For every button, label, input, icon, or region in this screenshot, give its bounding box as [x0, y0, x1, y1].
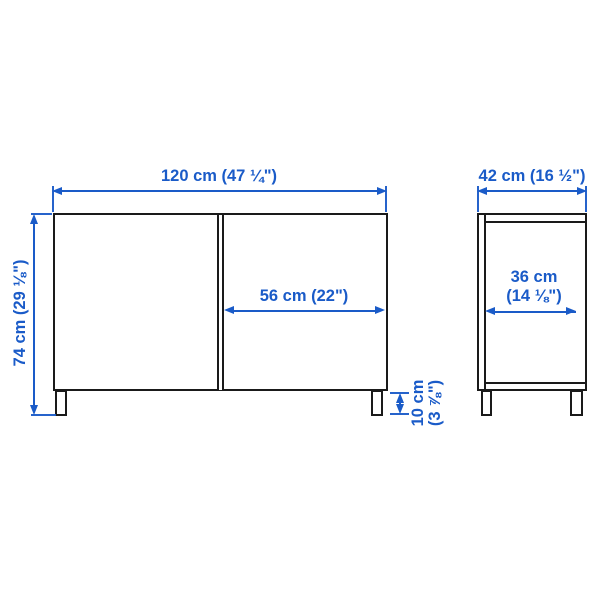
depth-dimension-line	[485, 190, 579, 192]
depth-dimension-label: 42 cm (16 ½")	[479, 167, 586, 185]
inner-depth-dimension-label-line2: (14 ⅛")	[506, 287, 562, 305]
side-front-panel-line	[484, 215, 486, 390]
width-dimension-line	[60, 190, 379, 192]
cabinet-leg-front-left	[55, 390, 67, 416]
arrow-down-icon	[396, 404, 404, 414]
arrow-left-icon	[485, 307, 495, 315]
height-dimension-label: 74 cm (29 ⅛")	[11, 260, 29, 367]
arrow-up-icon	[396, 393, 404, 403]
arrow-left-icon	[477, 187, 487, 195]
arrow-right-icon	[566, 307, 576, 315]
cabinet-leg-front-right	[371, 390, 383, 416]
inner-depth-dimension-line	[493, 311, 576, 313]
dimension-diagram: 120 cm (47 ¼") 74 cm (29 ⅛") 56 cm (22")…	[0, 0, 600, 600]
arrow-down-icon	[30, 405, 38, 415]
side-bottom-panel-line	[486, 382, 585, 384]
leg-height-dimension-label-line1: 10 cm	[409, 380, 427, 427]
arrow-right-icon	[377, 187, 387, 195]
arrow-right-icon	[577, 187, 587, 195]
arrow-left-icon	[224, 306, 234, 314]
arrow-up-icon	[30, 214, 38, 224]
cabinet-leg-side-left	[481, 390, 492, 416]
inner-depth-dimension-label-line1: 36 cm	[511, 268, 558, 286]
door-divider	[217, 215, 225, 390]
width-dimension-label: 120 cm (47 ¼")	[161, 167, 277, 185]
side-top-panel-line	[486, 221, 585, 223]
door-width-dimension-label: 56 cm (22")	[260, 287, 349, 305]
height-dimension-line	[33, 222, 35, 407]
arrow-right-icon	[375, 306, 385, 314]
leg-height-dimension-label-line2: (3 ⅞")	[426, 380, 444, 426]
cabinet-leg-side-right	[570, 390, 583, 416]
arrow-left-icon	[52, 187, 62, 195]
door-width-dimension-line	[232, 310, 377, 312]
